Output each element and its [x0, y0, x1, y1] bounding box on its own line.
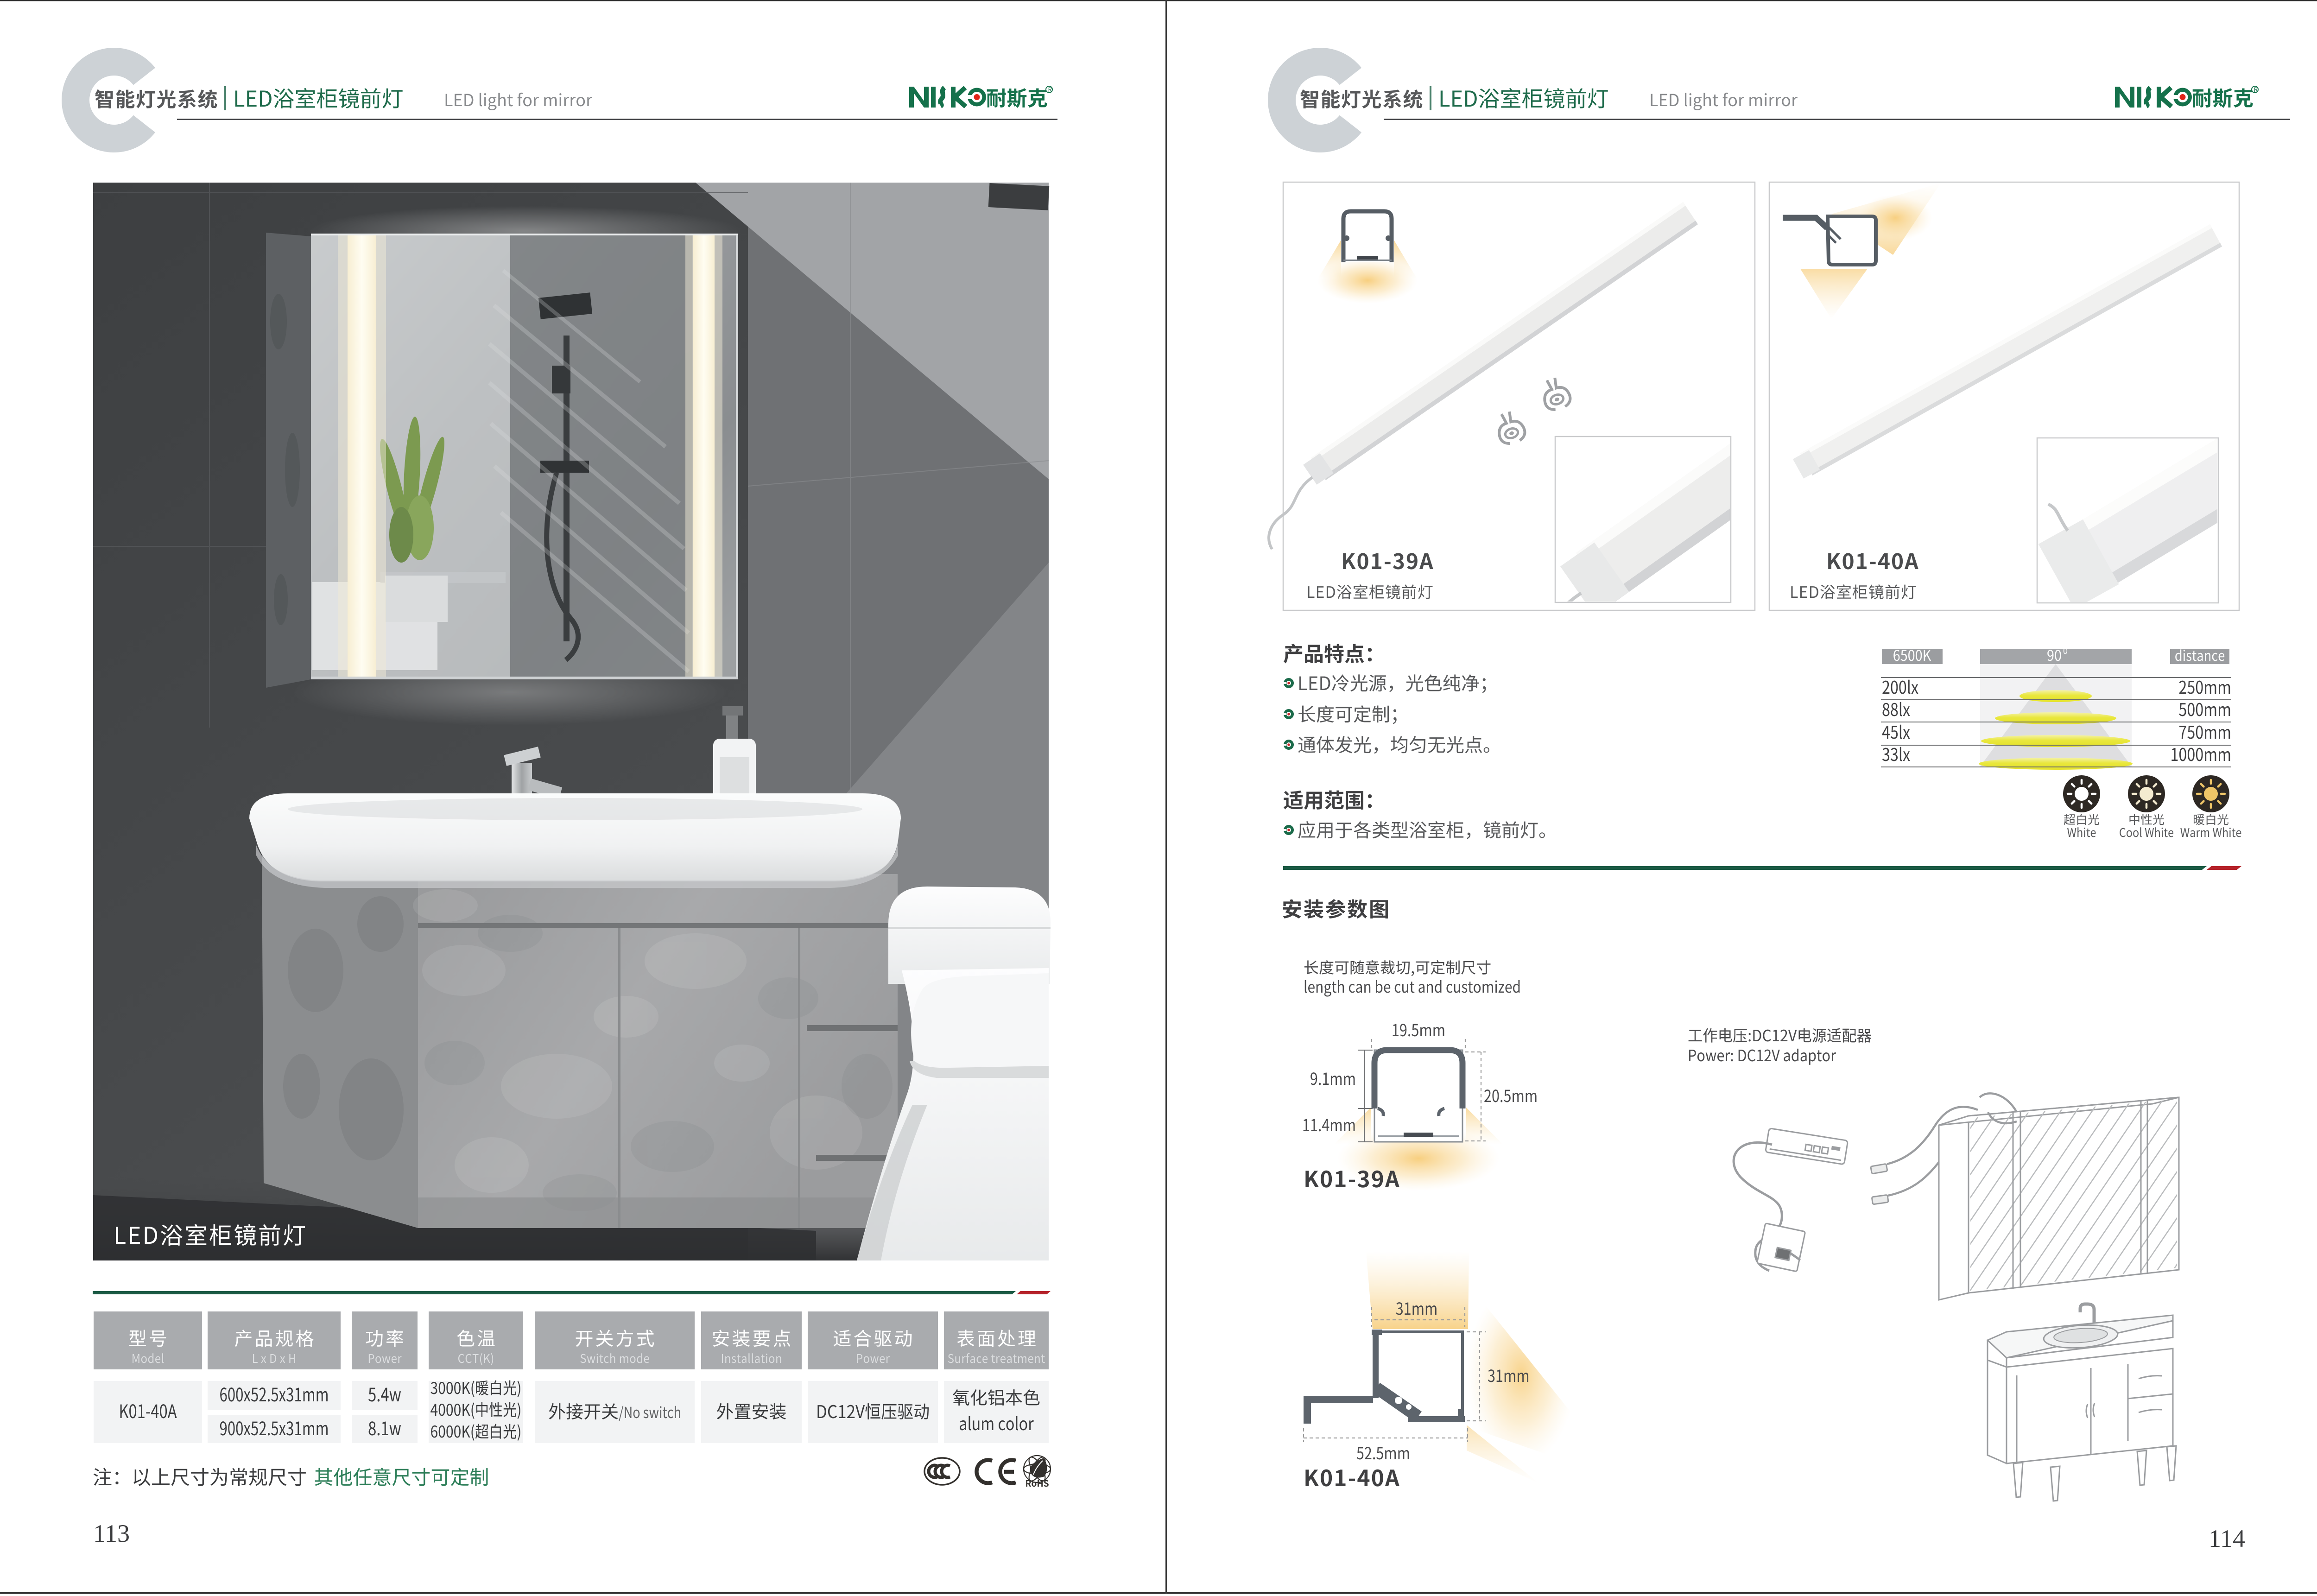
svg-text:114: 114	[2209, 1525, 2245, 1552]
svg-text:113: 113	[93, 1520, 130, 1547]
